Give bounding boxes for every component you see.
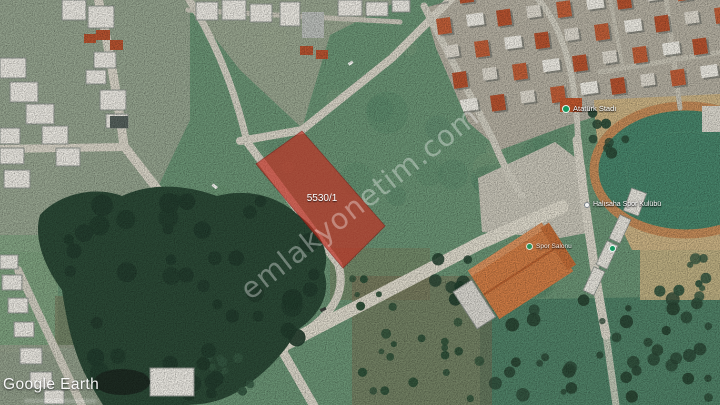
satellite-map: 5530/1 Atatürk Stadı Halısaha Spor Kulüb… (0, 0, 720, 405)
satellite-imagery: 5530/1 (0, 0, 720, 405)
parcel-label: 5530/1 (307, 193, 338, 204)
